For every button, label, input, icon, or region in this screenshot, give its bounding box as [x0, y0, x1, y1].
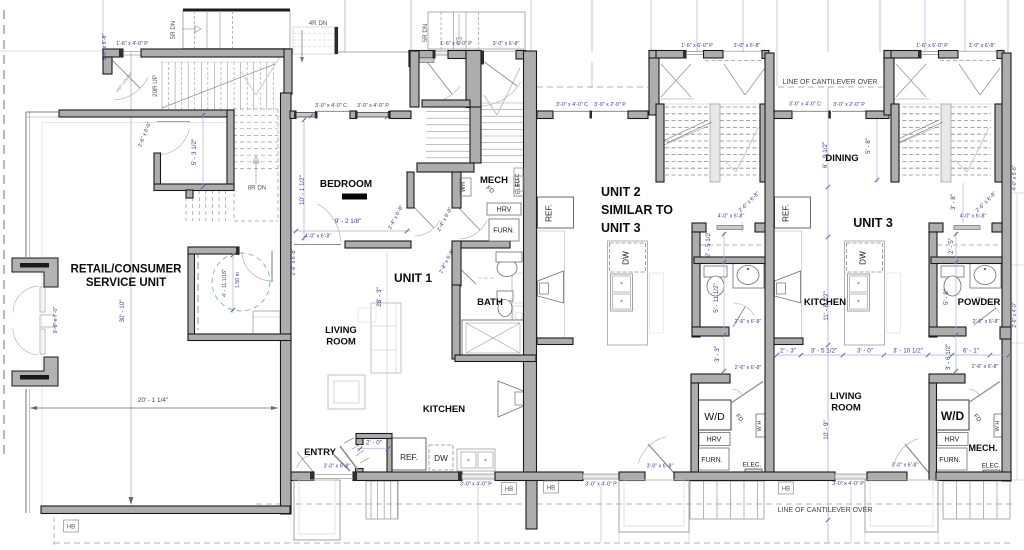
svg-text:W H: W H: [995, 421, 1001, 432]
svg-text:W/D: W/D: [941, 409, 965, 423]
svg-text:4'-0" x 5'-8": 4'-0" x 5'-8": [1012, 165, 1018, 190]
svg-text:UNIT 1: UNIT 1: [394, 271, 432, 285]
svg-text:3' - 5 1/2": 3' - 5 1/2": [811, 348, 838, 355]
svg-text:20' - 1 1/4": 20' - 1 1/4": [138, 397, 168, 404]
svg-text:2' - 5 1/2": 2' - 5 1/2": [705, 231, 712, 258]
svg-text:20R UP: 20R UP: [152, 75, 159, 97]
svg-text:WH: WH: [461, 182, 467, 192]
svg-text:UNIT 3: UNIT 3: [601, 221, 641, 235]
svg-text:LINE OF CANTILEVER OVER: LINE OF CANTILEVER OVER: [778, 507, 873, 514]
svg-text:REF.: REF.: [400, 453, 418, 462]
svg-text:10' - 1 1/2": 10' - 1 1/2": [299, 175, 306, 205]
svg-text:3' - 3": 3' - 3": [714, 346, 721, 362]
svg-text:3'-0" x 4'-0" P: 3'-0" x 4'-0" P: [832, 481, 864, 487]
svg-text:ROOM: ROOM: [831, 403, 861, 414]
svg-text:5' - 3 1/2": 5' - 3 1/2": [191, 139, 198, 166]
svg-text:3' - 6 1/2": 3' - 6 1/2": [945, 344, 952, 371]
svg-text:5R DN: 5R DN: [170, 21, 177, 40]
svg-text:2'-6" x 4'-0": 2'-6" x 4'-0": [1012, 302, 1018, 327]
svg-text:HB: HB: [505, 487, 513, 493]
svg-text:3'-0" x 2'-0" P: 3'-0" x 2'-0" P: [594, 102, 626, 108]
svg-text:3'-0" x 4'-0" C: 3'-0" x 4'-0" C: [315, 103, 347, 109]
svg-text:11' - 8 1/2": 11' - 8 1/2": [823, 291, 830, 321]
svg-text:3' - 0": 3' - 0": [857, 348, 873, 355]
svg-text:3'-0" x 4'-0" C: 3'-0" x 4'-0" C: [556, 102, 588, 108]
svg-text:UNIT 3: UNIT 3: [853, 216, 893, 230]
svg-text:2'-6" x 6'-8": 2'-6" x 6'-8": [972, 364, 999, 370]
svg-text:HRV: HRV: [945, 437, 960, 444]
svg-text:UNIT 2: UNIT 2: [601, 185, 641, 199]
svg-text:KITCHEN: KITCHEN: [423, 404, 465, 415]
svg-text:REF.: REF.: [782, 204, 791, 222]
svg-text:FURN.: FURN.: [939, 457, 960, 464]
svg-text:5' - 11 1/2": 5' - 11 1/2": [713, 283, 720, 313]
svg-text:ELEC.: ELEC.: [982, 463, 1001, 470]
svg-text:3'-0" x 6'-8": 3'-0" x 6'-8": [493, 41, 520, 47]
svg-text:9' - 2 1/8": 9' - 2 1/8": [335, 218, 362, 225]
svg-text:DW: DW: [859, 251, 868, 265]
svg-text:1'-6" x 6'-0" P: 1'-6" x 6'-0" P: [681, 43, 713, 49]
svg-text:6' - 9 1/2": 6' - 9 1/2": [822, 142, 829, 169]
svg-text:HRV: HRV: [497, 207, 512, 214]
svg-text:2'-6" x 6'-8": 2'-6" x 6'-8": [291, 249, 297, 276]
svg-text:2'-6" x 6'-8": 2'-6" x 6'-8": [735, 365, 762, 371]
svg-text:DINING: DINING: [825, 153, 858, 164]
svg-text:2' - 3": 2' - 3": [780, 348, 796, 355]
svg-text:3'-0" x 4'-0" P: 3'-0" x 4'-0" P: [357, 103, 389, 109]
svg-text:ELEC.: ELEC.: [743, 462, 762, 469]
svg-text:28' - 3": 28' - 3": [376, 287, 383, 307]
svg-text:4R DN: 4R DN: [309, 20, 328, 27]
svg-text:ROOM: ROOM: [326, 337, 356, 348]
svg-text:SIMILAR TO: SIMILAR TO: [601, 203, 673, 217]
svg-text:3'-0" x 6'-8": 3'-0" x 6'-8": [892, 463, 919, 469]
svg-text:1'-6" x 6'-0" P: 1'-6" x 6'-0" P: [440, 41, 472, 47]
svg-text:FURN.: FURN.: [493, 228, 514, 235]
svg-text:5R DN: 5R DN: [422, 24, 429, 43]
svg-text:5' - 8": 5' - 8": [943, 289, 950, 305]
svg-text:2' - 5": 2' - 5": [948, 238, 955, 254]
svg-text:3'-0" x 2'-0" P: 3'-0" x 2'-0" P: [833, 102, 865, 108]
svg-text:2'-6" x 6'-8": 2'-6" x 6'-8": [735, 319, 762, 325]
svg-text:3' - 8": 3' - 8": [950, 194, 957, 210]
svg-text:3'-0" x 4'-0" P: 3'-0" x 4'-0" P: [460, 482, 492, 488]
svg-text:2' - 0": 2' - 0": [366, 440, 382, 447]
svg-text:LIVING: LIVING: [325, 325, 357, 336]
svg-text:MECH.: MECH.: [969, 443, 998, 453]
svg-text:3'-0" x 4'-0" C: 3'-0" x 4'-0" C: [789, 102, 821, 108]
svg-text:HB: HB: [782, 487, 790, 493]
svg-text:SERVICE UNIT: SERVICE UNIT: [86, 277, 166, 289]
svg-text:3'-0" x 6'-8": 3'-0" x 6'-8": [734, 43, 761, 49]
svg-text:HB: HB: [547, 486, 555, 492]
svg-text:3'-0" x 6'-8": 3'-0" x 6'-8": [102, 34, 108, 61]
svg-text:1'-6" x 4'-0" P: 1'-6" x 4'-0" P: [116, 41, 148, 47]
svg-text:1'-6" x 6'-0" P: 1'-6" x 6'-0" P: [916, 43, 948, 49]
svg-text:REF.: REF.: [545, 204, 554, 222]
svg-text:LIVING: LIVING: [830, 391, 862, 402]
svg-text:8R DN: 8R DN: [248, 185, 267, 192]
svg-text:30' - 10": 30' - 10": [119, 299, 126, 322]
svg-text:2'-6" x 6'-8": 2'-6" x 6'-8": [973, 319, 1000, 325]
svg-text:3'-0" x 6'-8": 3'-0" x 6'-8": [969, 43, 996, 49]
svg-text:ELEC: ELEC: [515, 173, 521, 186]
svg-text:6' - 1": 6' - 1": [963, 348, 979, 355]
svg-text:4'-0" x 6'-8": 4'-0" x 6'-8": [718, 214, 745, 220]
svg-text:DW: DW: [622, 251, 631, 265]
svg-text:4' - 11 1/16": 4' - 11 1/16": [222, 269, 228, 297]
svg-text:4'-0" x 6'-8": 4'-0" x 6'-8": [960, 214, 987, 220]
svg-text:DW: DW: [434, 454, 448, 463]
svg-text:BATH: BATH: [477, 297, 503, 308]
svg-text:ENTRY: ENTRY: [304, 447, 337, 458]
svg-text:MECH: MECH: [480, 175, 508, 186]
svg-text:10' - 9": 10' - 9": [823, 420, 830, 440]
svg-text:3'-0" x 4'-0" P: 3'-0" x 4'-0" P: [585, 482, 617, 488]
svg-text:5' - 8": 5' - 8": [865, 138, 872, 154]
svg-text:W/D: W/D: [704, 411, 725, 423]
svg-text:RETAIL/CONSUMER: RETAIL/CONSUMER: [71, 264, 183, 276]
svg-text:1.50 m: 1.50 m: [235, 271, 241, 288]
svg-text:3' - 10 1/2": 3' - 10 1/2": [893, 348, 923, 355]
svg-text:3'-0" x 6'-8": 3'-0" x 6'-8": [647, 464, 674, 470]
svg-text:LINE OF CANTILEVER OVER: LINE OF CANTILEVER OVER: [783, 79, 878, 86]
svg-text:9'-6" x 7'-0": 9'-6" x 7'-0": [53, 307, 59, 334]
svg-text:FURN.: FURN.: [701, 457, 722, 464]
svg-text:POWDER: POWDER: [958, 297, 1001, 308]
svg-text:4'-0" x 6'-8": 4'-0" x 6'-8": [305, 234, 332, 240]
svg-text:W H: W H: [757, 421, 763, 432]
svg-text:HRV: HRV: [707, 437, 722, 444]
svg-text:BEDROOM: BEDROOM: [320, 179, 372, 190]
svg-text:HB: HB: [67, 525, 75, 531]
svg-text:3'-0" x 6'-8": 3'-0" x 6'-8": [324, 464, 351, 470]
